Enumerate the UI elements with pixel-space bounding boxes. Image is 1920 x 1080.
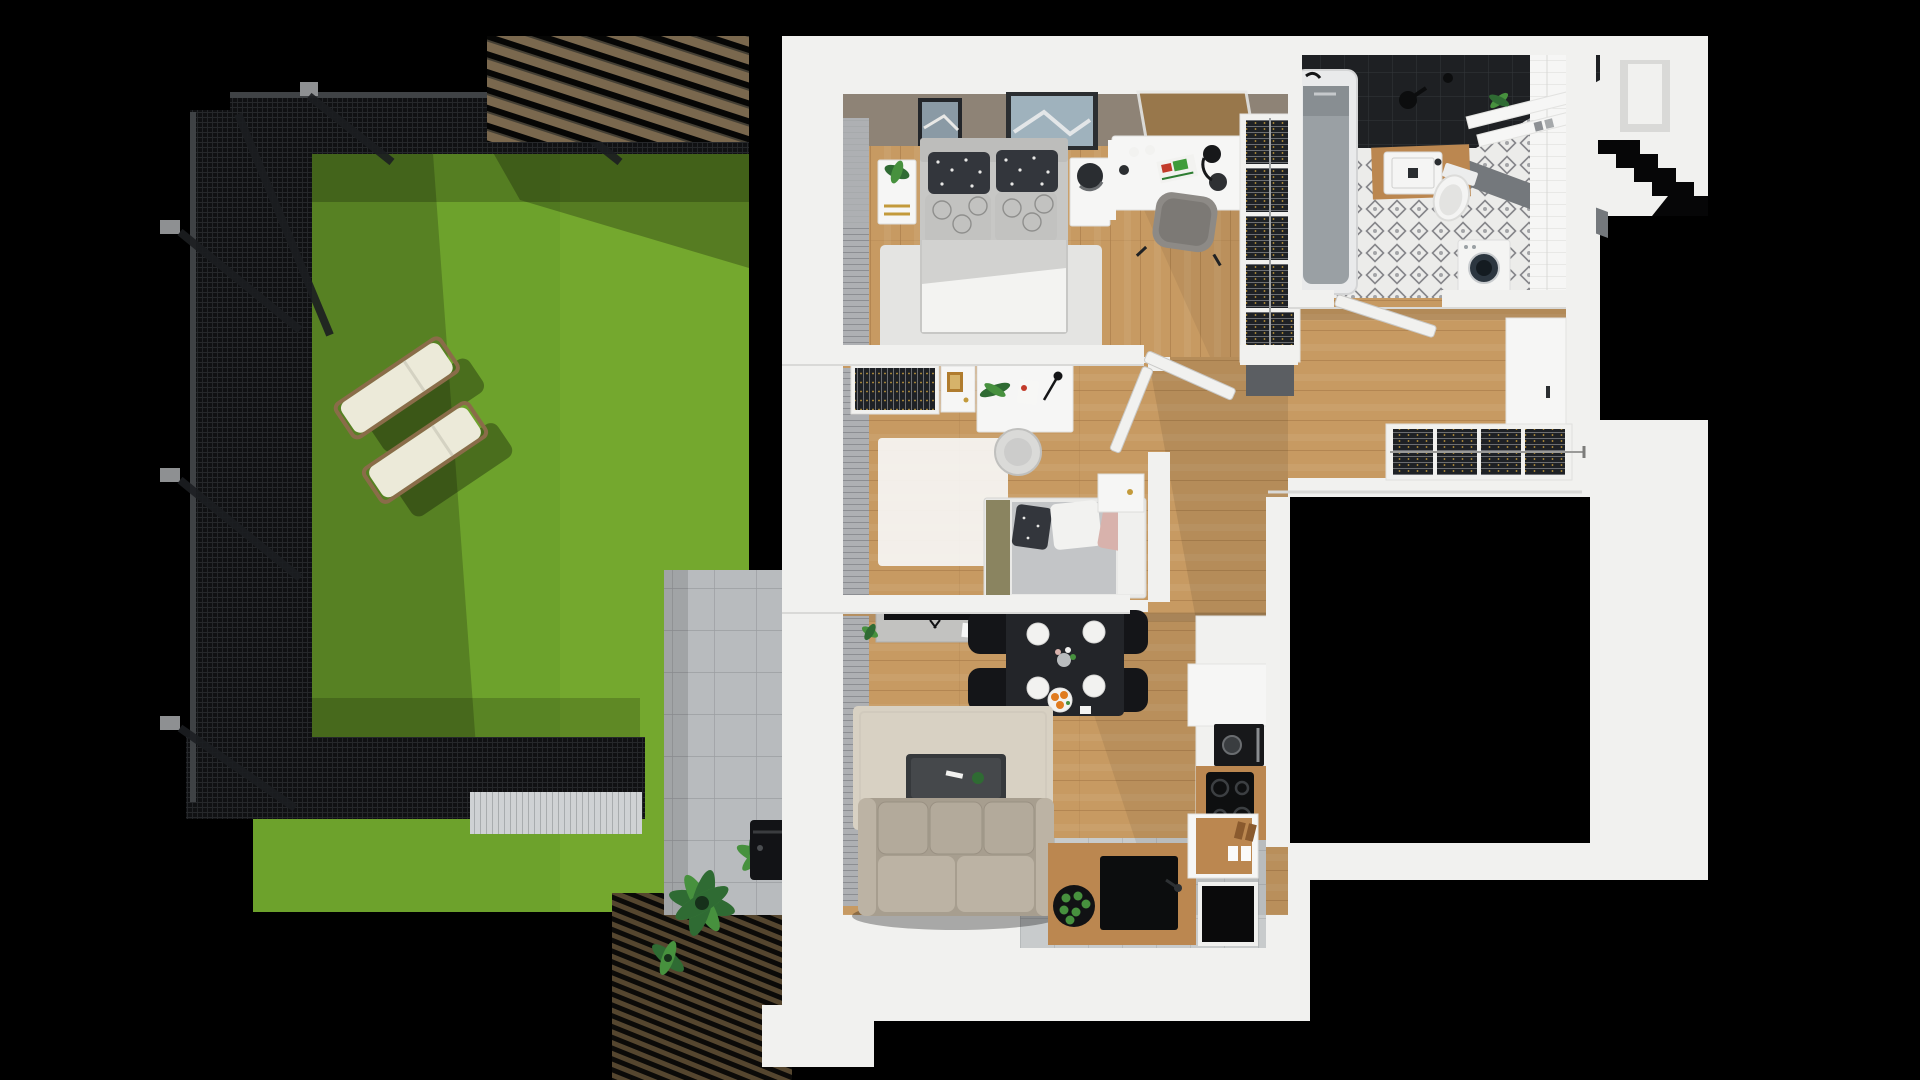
kids-mattress-edge — [1118, 502, 1144, 594]
sofa-armrest — [858, 798, 876, 916]
kids-desk — [977, 364, 1073, 432]
kids-chair — [995, 429, 1041, 475]
built-in-oven — [1214, 724, 1264, 766]
circle-pillow — [925, 194, 991, 244]
plate — [1027, 623, 1049, 645]
single-bed — [984, 498, 1146, 598]
sofa — [852, 798, 1060, 930]
pergola — [487, 36, 749, 142]
kids-dark-pillow — [1011, 504, 1052, 551]
plate — [1083, 621, 1105, 643]
nightstand-right — [1070, 158, 1110, 226]
hall-closet — [1386, 424, 1584, 480]
kids-white-pillow — [1050, 500, 1103, 551]
room-bathroom — [1295, 55, 1608, 298]
kids-open-wardrobe — [851, 364, 939, 414]
sofa-seat-cushion — [957, 856, 1034, 912]
sofa-back-cushion — [984, 802, 1034, 854]
napkin — [1080, 706, 1091, 714]
sofa-back-cushion — [878, 802, 928, 854]
void-courtyard — [1272, 497, 1590, 843]
plant-icon — [972, 772, 984, 784]
circle-pillow — [995, 192, 1057, 242]
curtain — [843, 118, 869, 228]
bathtub — [1295, 70, 1357, 294]
white-tile-wall — [1530, 55, 1566, 298]
nightstand-left — [878, 159, 916, 224]
wardrobe-mat — [1246, 364, 1294, 396]
island-sink — [1100, 856, 1178, 930]
entry-counter — [1188, 814, 1258, 878]
kids-nightstand — [1098, 474, 1144, 512]
fence-footer-strip — [470, 792, 642, 834]
sofa-seat-cushion — [878, 856, 955, 912]
veggie-tray — [1053, 885, 1095, 927]
plate — [1083, 675, 1105, 697]
kids-small-cabinet — [941, 366, 975, 412]
coffee-table — [906, 754, 1006, 802]
double-bed — [920, 138, 1068, 334]
floor-plan-render — [0, 0, 1920, 1080]
black-doormat — [1200, 884, 1256, 944]
desk-leg — [1108, 140, 1116, 220]
shoe-cabinet — [1506, 318, 1566, 424]
kitchen-island — [1048, 843, 1196, 945]
plate — [1027, 677, 1049, 699]
patio-shade — [664, 570, 688, 915]
desk-window-panel — [1138, 92, 1254, 138]
kids-headboard — [986, 500, 1010, 596]
washing-machine — [1458, 240, 1510, 294]
sofa-back-cushion — [930, 802, 982, 854]
fence-panel-left — [190, 110, 312, 804]
